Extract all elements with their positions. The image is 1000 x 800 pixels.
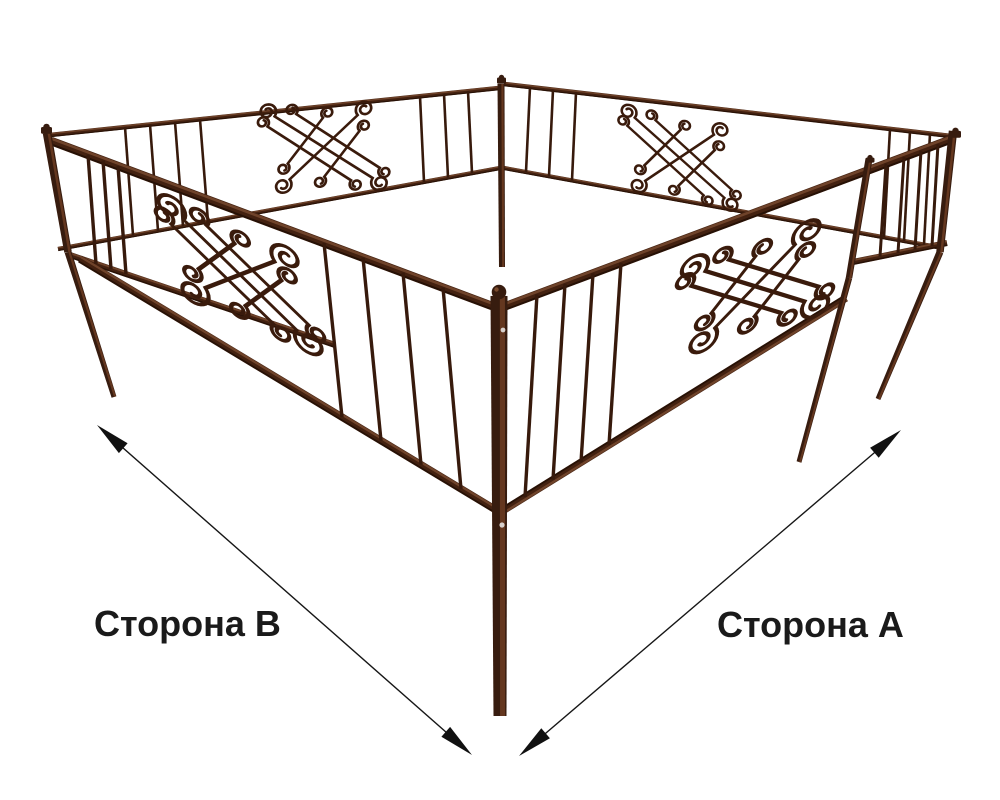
svg-text:Сторона А: Сторона А <box>717 604 904 645</box>
svg-text:Сторона B: Сторона B <box>94 603 281 644</box>
